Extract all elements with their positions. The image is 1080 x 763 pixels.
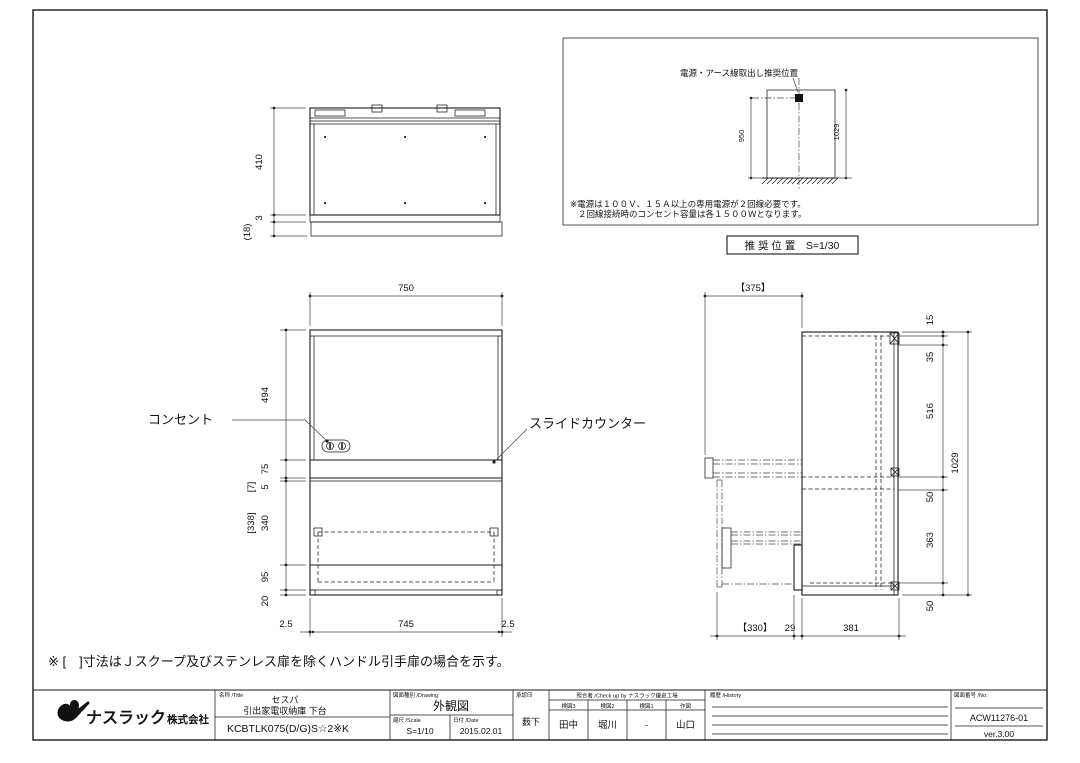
title-block: ナスラック 株式会社 名称 /Title セスパ 引出家電収納庫 下台 KCBT… — [33, 690, 1047, 740]
dim-410: 410 — [254, 154, 265, 170]
outlet-position-marker — [795, 94, 803, 102]
power-label: 電源・アース線取出し推奨位置 — [680, 68, 799, 78]
dim-375: 【375】 — [736, 283, 771, 294]
dim-95: 95 — [260, 572, 271, 583]
check-col-1: 検図1 — [639, 702, 653, 710]
power-box-border — [563, 38, 1038, 225]
checkers-cell: 照合者 /Check up by ナスラック鎌倉工場 検図3 検図2 検図1 作… — [549, 692, 705, 741]
dim-5: 5 — [260, 484, 271, 489]
drawing-version: ver.3.00 — [984, 729, 1015, 739]
dim-338-bracket: [338] — [246, 512, 257, 533]
dim-7-bracket: [7] — [246, 482, 257, 493]
outlet-label: コンセント — [148, 412, 213, 427]
dim-75: 75 — [260, 464, 271, 475]
product-series: セスパ — [271, 695, 298, 705]
company-name: ナスラック — [86, 709, 166, 727]
drawing-sheet: 410 3 (18) 電源・アース線取出し推奨位置 950 1029 ※電源は１… — [0, 0, 1080, 763]
check-col-3: 検図3 — [561, 702, 575, 710]
date-label: 日付 /Date — [453, 716, 479, 724]
dim-1029-box: 1029 — [832, 124, 841, 141]
power-note-line2: ２回線接続時のコンセント容量は各１５００Ｗとなります。 — [578, 209, 806, 219]
side-view: 【375】 — [704, 283, 972, 640]
dim-20: 20 — [260, 596, 271, 607]
top-view: 410 3 (18) — [242, 105, 502, 240]
company-cell: ナスラック 株式会社 — [58, 700, 210, 727]
dim-363: 363 — [925, 532, 936, 548]
checker-name-1: - — [645, 720, 648, 731]
checker-name-3: 田中 — [559, 719, 578, 731]
approval-label: 承認印 — [516, 691, 533, 699]
title-label: 名称 /Title — [219, 691, 243, 699]
dim-750: 750 — [398, 283, 414, 294]
drawing-number-cell: 図面番号 /No. ACW11276-01 ver.3.00 — [954, 692, 1043, 739]
recommended-position-caption: 推 奨 位 置 S=1/30 — [727, 236, 858, 254]
scale-value: S=1/10 — [406, 726, 433, 736]
dim-29: 29 — [785, 623, 796, 634]
drafter-name: 山口 — [676, 720, 695, 731]
drawer-slide-bracket — [722, 528, 731, 568]
power-position-box: 電源・アース線取出し推奨位置 950 1029 ※電源は１００Ｖ、１５Ａ以上の専… — [563, 38, 1038, 225]
power-note-line1: ※電源は１００Ｖ、１５Ａ以上の専用電源が２回線必要です。 — [570, 199, 806, 209]
scale-label: 縮尺 /Scale — [393, 716, 421, 724]
check-col-2: 検図2 — [600, 702, 614, 710]
front-view: 750 — [148, 283, 646, 637]
nasluck-logo-icon — [58, 700, 90, 722]
dim-35: 35 — [925, 352, 936, 363]
ground-hatch — [762, 178, 838, 184]
dim-516: 516 — [925, 403, 936, 419]
history-cell: 履歴 /History — [710, 692, 948, 734]
check-col-draw: 作図 — [680, 702, 692, 710]
dim-494: 494 — [260, 387, 271, 403]
dim-1029: 1029 — [950, 452, 961, 473]
drawing-label: 図面種別 /Drawing — [393, 691, 438, 699]
dim-18: (18) — [242, 224, 253, 241]
drawing-type: 外観図 — [433, 699, 469, 713]
dim-340: 340 — [260, 515, 271, 531]
caption-text: 推 奨 位 置 S=1/30 — [745, 239, 840, 252]
history-label: 履歴 /History — [710, 692, 741, 699]
dim-950: 950 — [737, 130, 746, 143]
model-number: KCBTLK075(D/G)S☆2※K — [227, 723, 349, 735]
dim-3: 3 — [254, 215, 265, 220]
slide-counter-extended-cap — [705, 458, 713, 478]
dim-381: 381 — [843, 623, 859, 634]
dim-2-5-left: 2.5 — [279, 619, 292, 630]
drawer-front-panel — [794, 545, 802, 590]
dim-330: 【330】 — [738, 623, 773, 634]
number-label: 図面番号 /No. — [954, 692, 988, 699]
bracket-dimension-note: ※ [ ]寸法はＪスクープ及びステンレス扉を除くハンドル引手扉の場合を示す。 — [48, 654, 510, 669]
drawing-type-cell: 図面種別 /Drawing 外観図 縮尺 /Scale S=1/10 日付 /D… — [390, 691, 513, 740]
approval-cell: 承認印 薮下 — [516, 691, 540, 727]
check-label: 照合者 /Check up by ナスラック鎌倉工場 — [576, 692, 678, 700]
product-name: 引出家電収納庫 下台 — [243, 705, 327, 716]
dim-15: 15 — [925, 315, 936, 326]
drawing-number: ACW11276-01 — [970, 713, 1028, 723]
dim-745: 745 — [398, 619, 414, 630]
sheet-border — [33, 10, 1047, 740]
approval-name: 薮下 — [522, 716, 540, 727]
date-value: 2015.02.01 — [460, 726, 503, 736]
dim-50-top: 50 — [925, 492, 936, 503]
title-cell: 名称 /Title セスパ 引出家電収納庫 下台 KCBTLK075(D/G)S… — [215, 691, 390, 735]
cad-drawing: 410 3 (18) 電源・アース線取出し推奨位置 950 1029 ※電源は１… — [0, 0, 1080, 763]
dim-2-5-right: 2.5 — [501, 619, 514, 630]
dim-50-bottom: 50 — [925, 601, 936, 612]
slide-counter-label: スライドカウンター — [529, 416, 646, 431]
checker-name-2: 堀川 — [598, 720, 617, 731]
company-suffix: 株式会社 — [167, 713, 209, 726]
